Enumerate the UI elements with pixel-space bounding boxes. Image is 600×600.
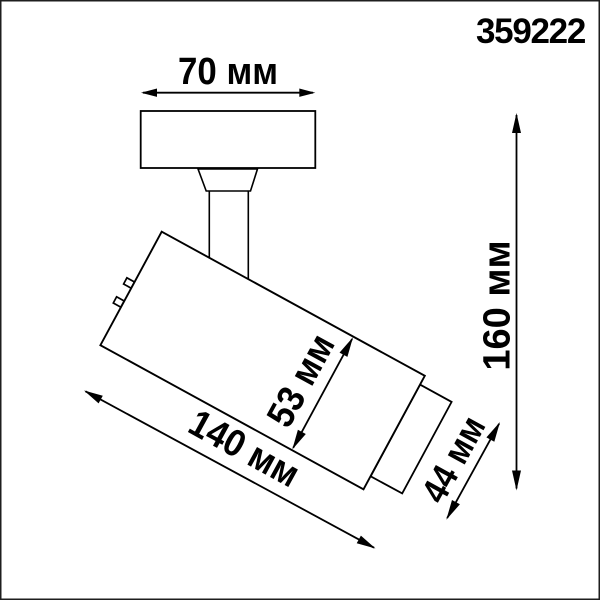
svg-text:70 мм: 70 мм [178,51,278,93]
svg-text:160 мм: 160 мм [477,240,519,370]
svg-text:359222: 359222 [476,12,586,51]
